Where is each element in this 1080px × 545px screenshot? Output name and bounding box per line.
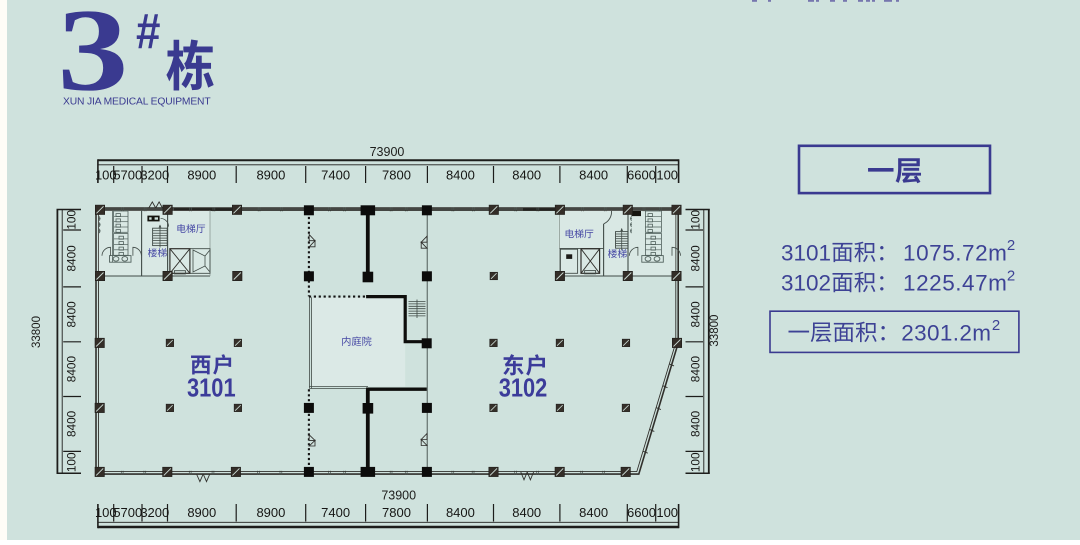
svg-text:73900: 73900	[370, 145, 405, 159]
svg-text:8400: 8400	[65, 301, 79, 328]
svg-text:8400: 8400	[579, 505, 608, 520]
svg-text:2: 2	[1007, 267, 1015, 284]
svg-text:100: 100	[656, 168, 678, 183]
svg-text:3102: 3102	[781, 270, 831, 295]
svg-text:33800: 33800	[31, 316, 43, 348]
svg-text:3102: 3102	[499, 374, 548, 403]
svg-text:#: #	[136, 3, 160, 59]
svg-text:100: 100	[656, 505, 678, 520]
svg-text:8400: 8400	[512, 505, 541, 520]
svg-text:8400: 8400	[689, 410, 703, 437]
svg-text:8400: 8400	[689, 301, 703, 328]
svg-text:3200: 3200	[140, 168, 169, 183]
svg-text:8900: 8900	[187, 168, 216, 183]
svg-text:8400: 8400	[65, 356, 79, 383]
svg-text:8400: 8400	[446, 168, 475, 183]
svg-text:2: 2	[992, 317, 1000, 334]
svg-text:100: 100	[65, 210, 79, 230]
svg-text:8400: 8400	[512, 168, 541, 183]
svg-text:2301.2m: 2301.2m	[901, 320, 991, 345]
svg-text:8400: 8400	[65, 245, 79, 272]
svg-text:3101: 3101	[781, 240, 831, 265]
svg-text:100: 100	[689, 210, 703, 230]
svg-text:73900: 73900	[381, 489, 416, 503]
svg-text:1075.72m: 1075.72m	[903, 240, 1007, 265]
svg-text:7400: 7400	[321, 168, 350, 183]
svg-text:XUN JIA MEDICAL EQUIPMENT: XUN JIA MEDICAL EQUIPMENT	[63, 96, 211, 107]
svg-text:2: 2	[1007, 237, 1015, 254]
svg-text:8900: 8900	[256, 505, 285, 520]
svg-text:8900: 8900	[187, 505, 216, 520]
svg-text:7800: 7800	[382, 505, 411, 520]
svg-text:100: 100	[689, 452, 703, 472]
svg-text:8400: 8400	[689, 356, 703, 383]
svg-text:8400: 8400	[446, 505, 475, 520]
svg-text:8900: 8900	[256, 168, 285, 183]
svg-text:1225.47m: 1225.47m	[903, 270, 1007, 295]
svg-text:33800: 33800	[709, 315, 721, 347]
svg-text:5700: 5700	[113, 168, 142, 183]
svg-text:8400: 8400	[579, 168, 608, 183]
svg-text:5700: 5700	[113, 505, 142, 520]
svg-text:6600: 6600	[627, 168, 656, 183]
svg-text:8400: 8400	[689, 245, 703, 272]
svg-text:3200: 3200	[140, 505, 169, 520]
svg-text:7400: 7400	[321, 505, 350, 520]
svg-text:100: 100	[65, 452, 79, 472]
svg-text:6600: 6600	[627, 505, 656, 520]
svg-text:3101: 3101	[187, 374, 236, 403]
svg-text:7800: 7800	[382, 168, 411, 183]
svg-text:8400: 8400	[65, 410, 79, 437]
